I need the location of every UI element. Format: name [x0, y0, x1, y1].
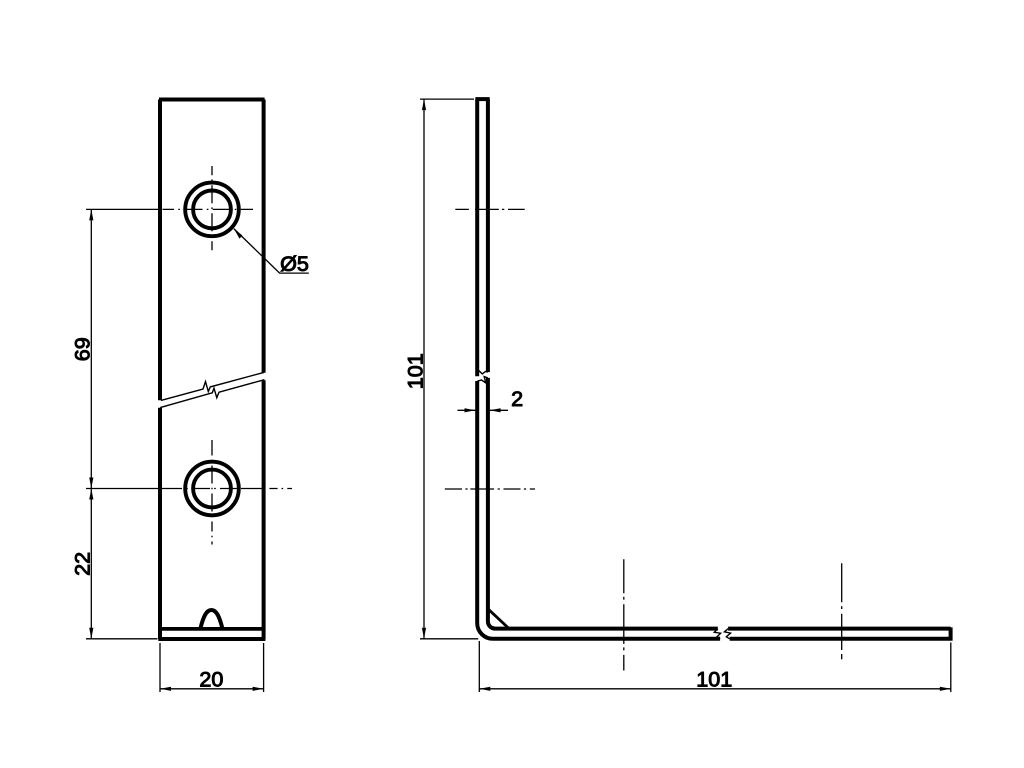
svg-text:101: 101: [696, 666, 732, 691]
svg-text:20: 20: [199, 666, 223, 691]
svg-text:22: 22: [70, 552, 95, 576]
svg-text:69: 69: [70, 337, 95, 361]
svg-text:Ø5: Ø5: [280, 251, 309, 276]
svg-text:2: 2: [511, 386, 523, 411]
svg-text:101: 101: [403, 353, 428, 389]
